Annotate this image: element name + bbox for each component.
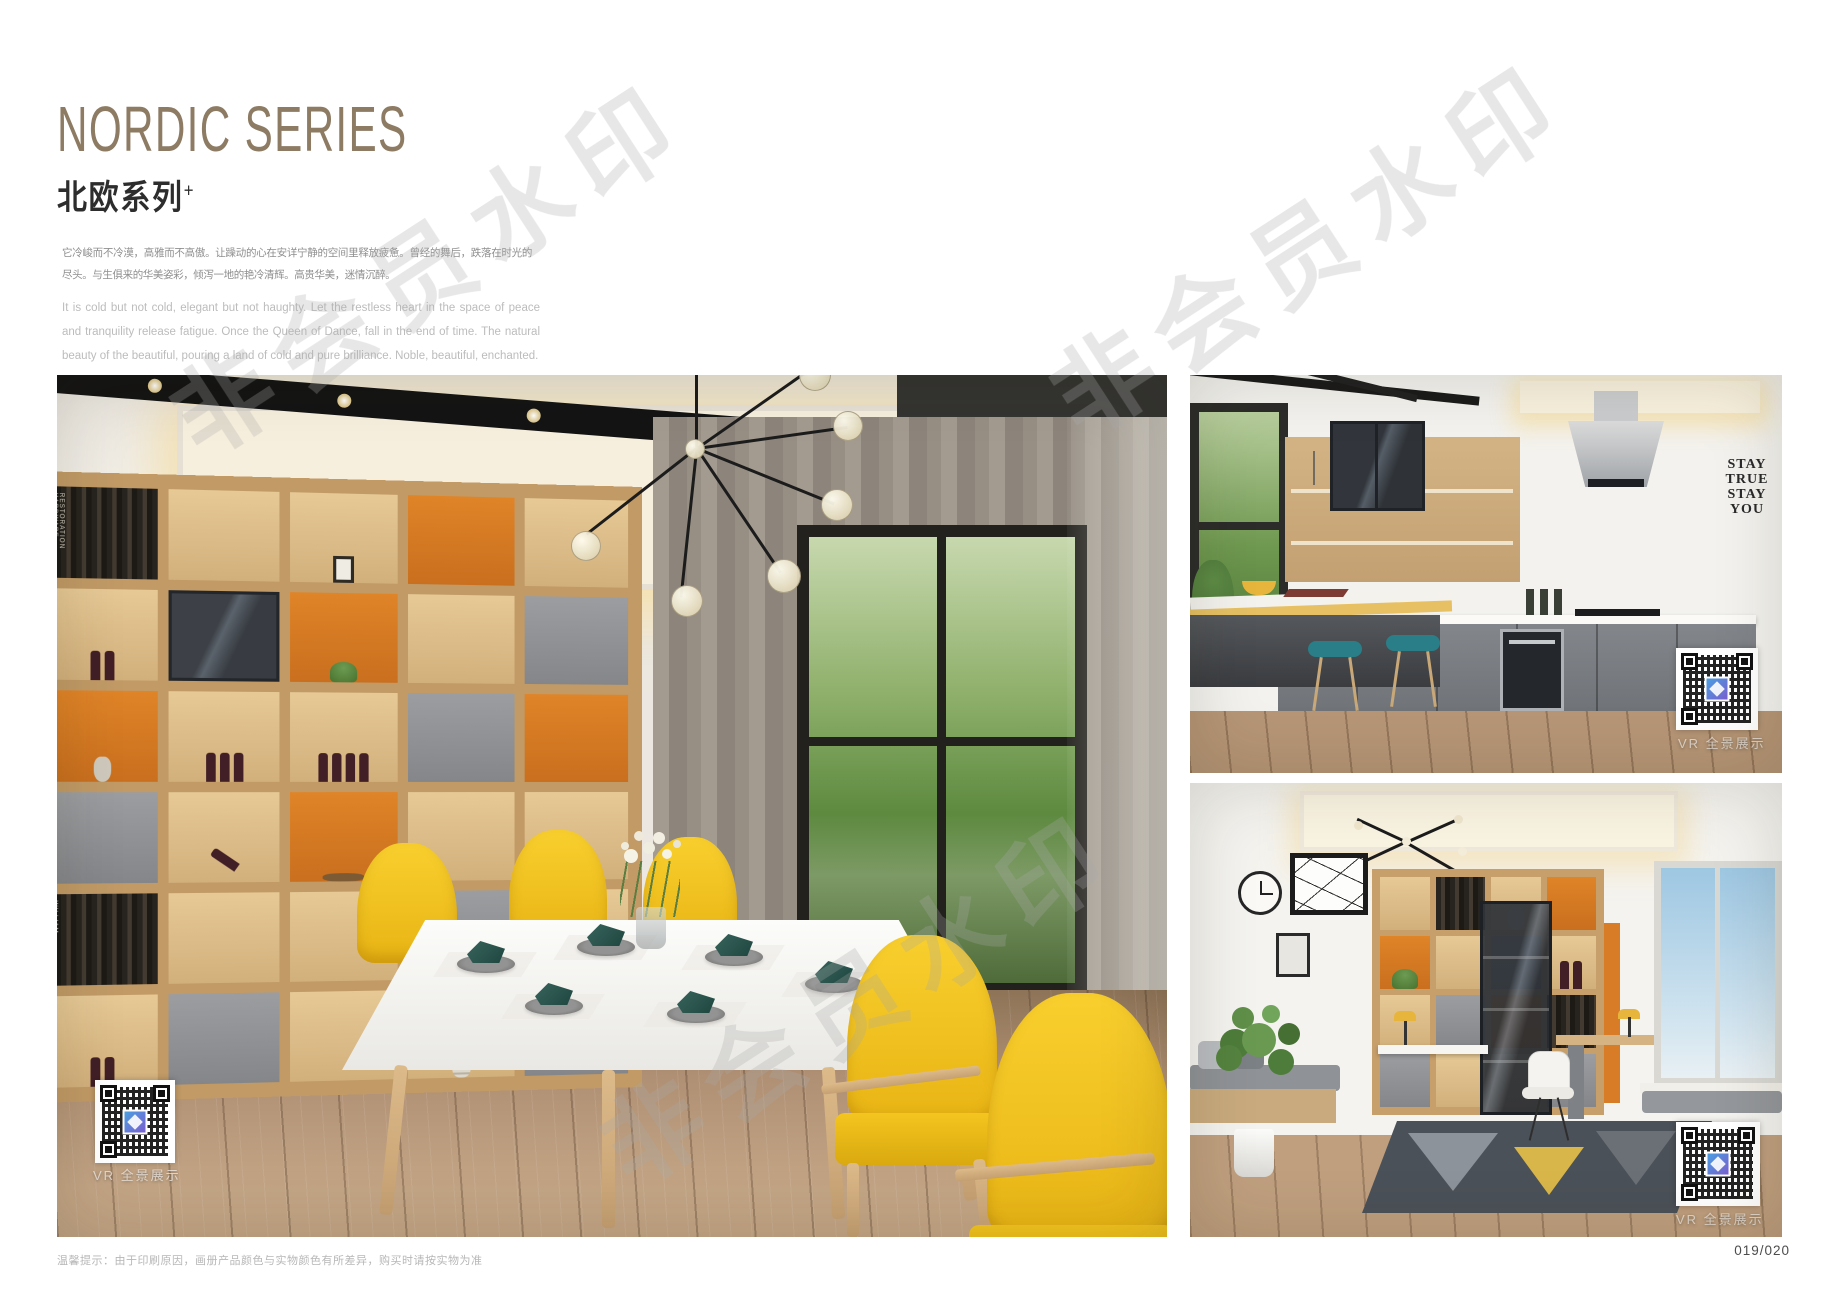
photo-study: VR 全景展示 <box>1190 783 1782 1237</box>
photo-vignette <box>57 375 1167 1237</box>
photo-vignette <box>1190 375 1782 773</box>
photo-vignette <box>1190 783 1782 1237</box>
page-subtitle-cn: 北欧系列+ <box>57 170 195 219</box>
subtitle-superscript: + <box>184 181 196 202</box>
page-number: 019/020 <box>1734 1243 1790 1258</box>
intro-paragraph-en: It is cold but not cold, elegant but not… <box>62 296 540 368</box>
page-title: NORDIC SERIES <box>57 92 407 166</box>
subtitle-text: 北欧系列 <box>57 179 184 217</box>
footer-disclaimer: 温馨提示：由于印刷原因，画册产品颜色与实物颜色有所差异，购买时请按实物为准 <box>57 1252 483 1268</box>
photo-dining-room: RESTORATION HARDWARE WILLIAM <box>57 375 1167 1237</box>
intro-paragraph-cn: 它冷峻而不冷漠，高雅而不高傲。让躁动的心在安详宁静的空间里释放疲惫。曾经的舞后，… <box>62 242 532 286</box>
photo-kitchen: STAY TRUE STAY YOU VR 全景展示 <box>1190 375 1782 773</box>
catalog-page: 非会员水印 非会员水印 非会员水印 NORDIC SERIES 北欧系列+ 它冷… <box>0 0 1836 1307</box>
